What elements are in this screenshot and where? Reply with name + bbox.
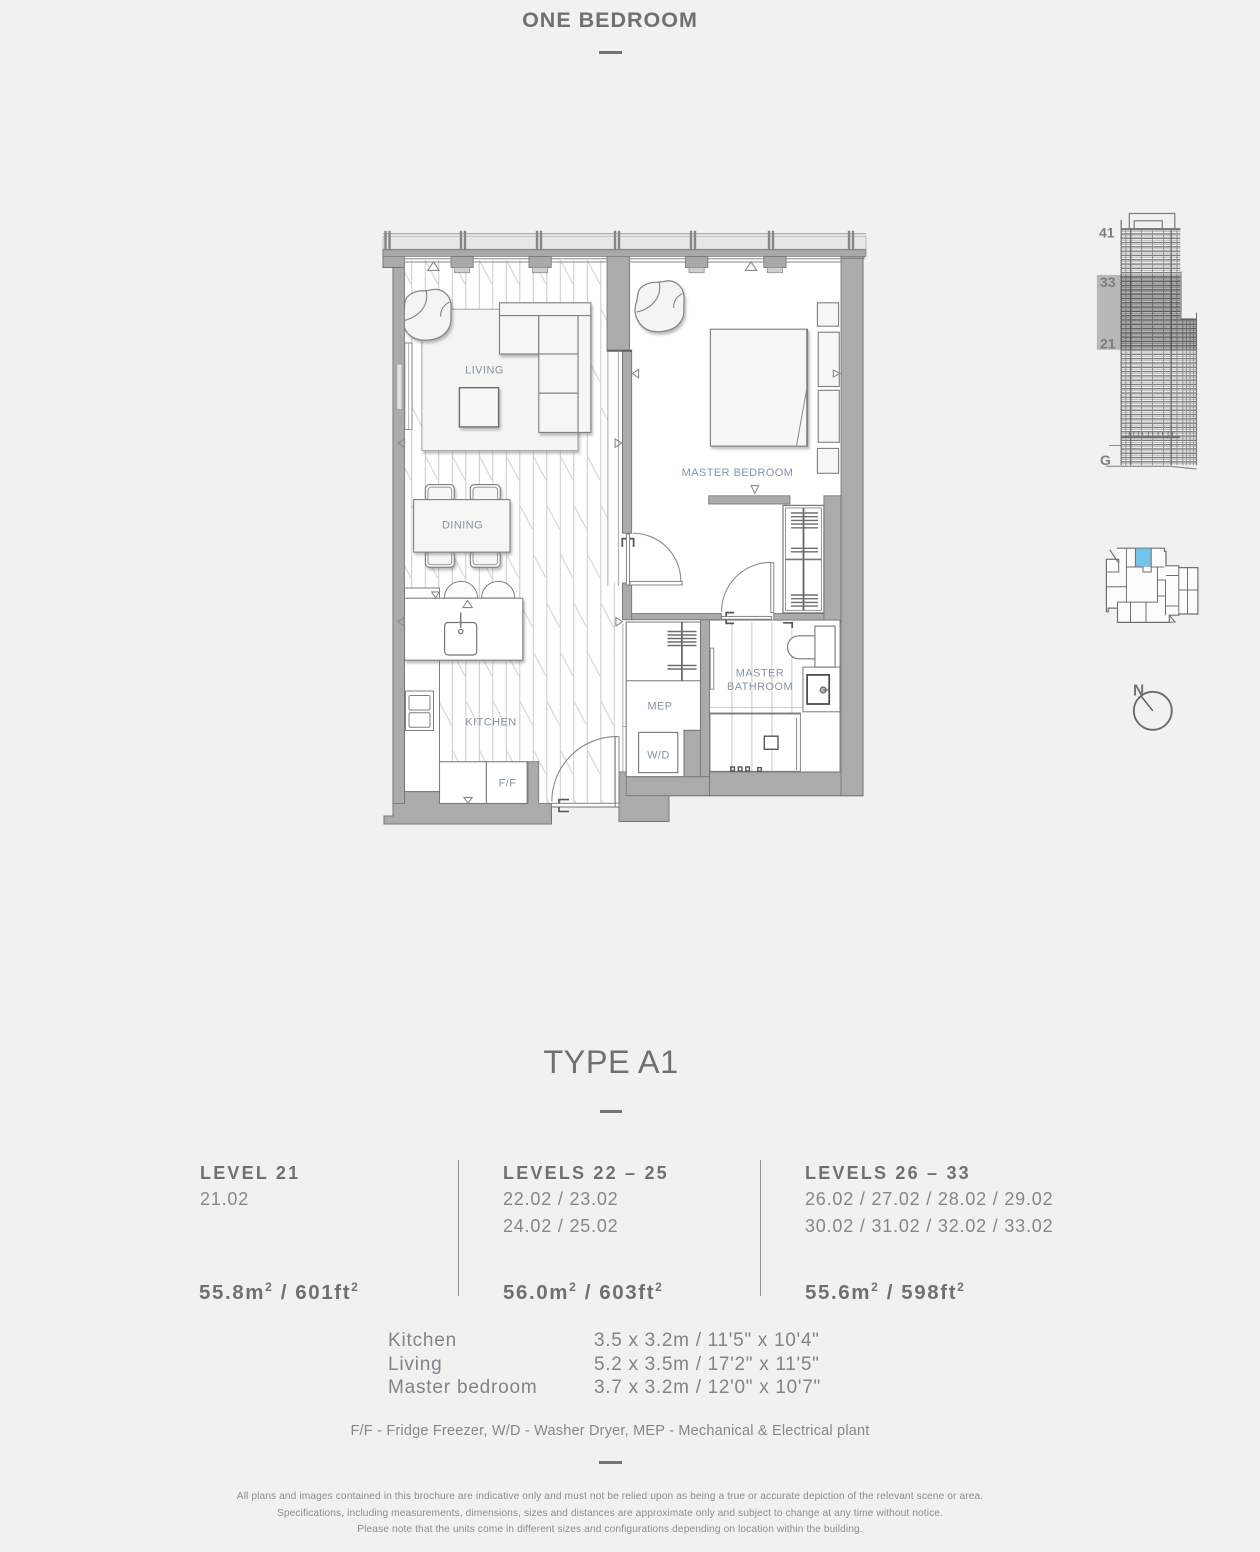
svg-text:MASTER: MASTER [736,668,784,680]
svg-text:MASTER BEDROOM: MASTER BEDROOM [682,467,794,479]
svg-text:N: N [1133,683,1144,700]
svg-text:G: G [1100,452,1111,468]
svg-text:LIVING: LIVING [465,365,504,377]
svg-text:KITCHEN: KITCHEN [465,717,516,729]
svg-text:21: 21 [1100,336,1116,352]
svg-text:33: 33 [1100,274,1116,290]
svg-text:DINING: DINING [442,520,483,532]
svg-text:F/F: F/F [499,778,517,790]
svg-text:BATHROOM: BATHROOM [727,681,793,693]
svg-text:MEP: MEP [647,701,672,713]
svg-text:W/D: W/D [647,750,670,762]
svg-text:41: 41 [1099,225,1115,241]
